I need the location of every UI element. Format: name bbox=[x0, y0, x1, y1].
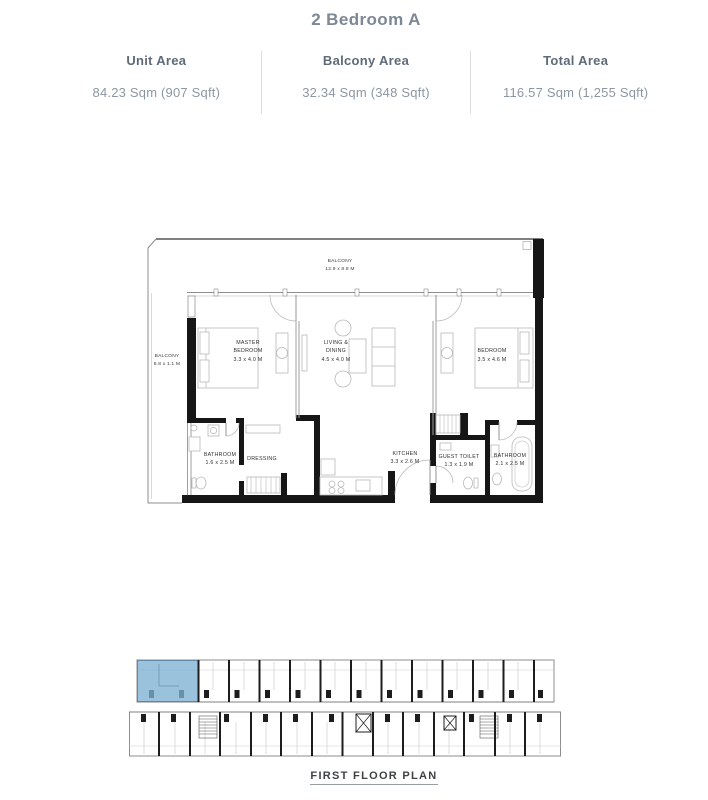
label-bathroom-1: BATHROOM bbox=[204, 452, 236, 458]
stat-label: Total Area bbox=[471, 53, 680, 68]
stat-unit-area: Unit Area 84.23 Sqm (907 Sqft) bbox=[52, 51, 261, 114]
label-bedroom: BEDROOM bbox=[477, 348, 506, 354]
stat-label: Unit Area bbox=[52, 53, 261, 68]
label-bathroom-2: BATHROOM bbox=[494, 453, 526, 459]
svg-text:1.3 x 1.9 M: 1.3 x 1.9 M bbox=[445, 462, 474, 468]
label-balcony-left: BALCONY bbox=[155, 353, 180, 359]
svg-text:8.8 x 1.1 M: 8.8 x 1.1 M bbox=[154, 361, 180, 367]
label-living-dining: LIVING & bbox=[324, 340, 349, 346]
building-key-plan bbox=[129, 656, 561, 762]
label-guest-toilet: GUEST TOILET bbox=[439, 454, 480, 460]
label-balcony-top: BALCONY bbox=[328, 258, 353, 264]
svg-text:4.5 x 4.0 M: 4.5 x 4.0 M bbox=[322, 357, 351, 363]
unit-brochure-page: 2 Bedroom A Unit Area 84.23 Sqm (907 Sqf… bbox=[0, 0, 708, 800]
stat-value: 116.57 Sqm (1,255 Sqft) bbox=[471, 85, 680, 100]
stat-value: 84.23 Sqm (907 Sqft) bbox=[52, 85, 261, 100]
area-stats-row: Unit Area 84.23 Sqm (907 Sqft) Balcony A… bbox=[52, 51, 680, 114]
svg-text:3.3 x 2.6 M: 3.3 x 2.6 M bbox=[391, 459, 420, 465]
stat-value: 32.34 Sqm (348 Sqft) bbox=[262, 85, 471, 100]
label-dressing: DRESSING bbox=[247, 456, 277, 462]
svg-text:3.5 x 4.6 M: 3.5 x 4.6 M bbox=[478, 357, 507, 363]
header: 2 Bedroom A Unit Area 84.23 Sqm (907 Sqf… bbox=[52, 10, 680, 114]
unit-floor-plan: BALCONY 12.9 x 8.8 M BALCONY 8.8 x 1.1 M… bbox=[144, 231, 560, 507]
window-wall bbox=[187, 289, 533, 296]
svg-text:12.9 x 8.8 M: 12.9 x 8.8 M bbox=[325, 266, 354, 272]
stat-total-area: Total Area 116.57 Sqm (1,255 Sqft) bbox=[470, 51, 680, 114]
unit-walls bbox=[182, 296, 543, 503]
highlighted-unit bbox=[138, 661, 199, 702]
stat-label: Balcony Area bbox=[262, 53, 471, 68]
page-title: 2 Bedroom A bbox=[52, 10, 680, 30]
svg-text:1.6 x 2.5 M: 1.6 x 2.5 M bbox=[206, 460, 235, 466]
label-kitchen: KITCHEN bbox=[393, 451, 418, 457]
key-plan-caption: FIRST FLOOR PLAN bbox=[254, 766, 494, 785]
label-master-bedroom: MASTER bbox=[236, 340, 260, 346]
svg-text:DINING: DINING bbox=[326, 348, 346, 354]
stat-balcony-area: Balcony Area 32.34 Sqm (348 Sqft) bbox=[261, 51, 471, 114]
furniture bbox=[189, 320, 533, 495]
svg-text:2.1 x 2.5 M: 2.1 x 2.5 M bbox=[496, 461, 525, 467]
svg-text:BEDROOM: BEDROOM bbox=[233, 348, 262, 354]
svg-text:3.3 x 4.0 M: 3.3 x 4.0 M bbox=[234, 357, 263, 363]
